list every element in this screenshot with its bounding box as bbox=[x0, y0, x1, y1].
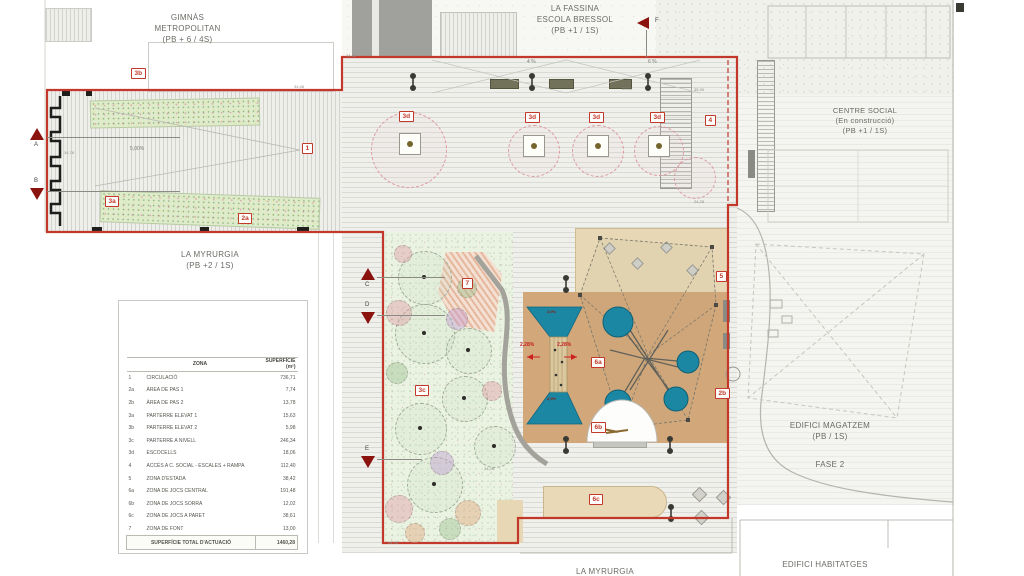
dimension-label: 34,28 bbox=[388, 540, 398, 545]
dimension-label: 34,51 bbox=[622, 86, 632, 91]
legend-row: 3cPARTERRE A NIVELL246,34 bbox=[127, 435, 298, 448]
section-arrow-d-icon bbox=[361, 312, 375, 324]
legend-total-row: SUPERFÍCIE TOTAL D'ACTUACIÓ1460,28 bbox=[127, 536, 298, 550]
section-arrow-letter: F bbox=[655, 18, 659, 24]
zone-marker: 2b bbox=[715, 388, 730, 399]
zone-marker: 2a bbox=[238, 213, 252, 224]
dimension-label: 35,39 bbox=[694, 87, 704, 92]
legend-row: 5ZONA D'ESTADA38,42 bbox=[127, 472, 298, 485]
zone-marker: 3d bbox=[399, 111, 414, 122]
zone-marker: 1 bbox=[302, 143, 313, 154]
section-arrow-c-icon bbox=[361, 268, 375, 280]
tree-trunk-dot bbox=[462, 396, 466, 400]
slope-label: 2,28% bbox=[557, 342, 571, 348]
building-label-habitatges: EDIFICI HABITATGES bbox=[725, 559, 925, 570]
bush bbox=[386, 362, 408, 384]
tree-trunk-dot bbox=[432, 482, 436, 486]
bush bbox=[446, 308, 468, 330]
tree-pit bbox=[399, 133, 421, 155]
section-arrow-e-icon bbox=[361, 456, 375, 468]
tree-pit bbox=[648, 135, 670, 157]
slope-label: 4 % bbox=[527, 59, 536, 65]
zone-marker: 6c bbox=[589, 494, 603, 505]
slope-label: 2,0% bbox=[547, 396, 556, 401]
legend-row: 3bPARTERRE ELEVAT 25,98 bbox=[127, 422, 298, 435]
legend-row: 6cZONA DE JOCS A PARET38,61 bbox=[127, 510, 298, 523]
section-line bbox=[646, 30, 647, 57]
legend-header: ZONASUPERFÍCIE (m²) bbox=[127, 358, 298, 372]
zone-marker: 5 bbox=[716, 271, 727, 282]
legend-row: 3dESCOCELLS18,06 bbox=[127, 447, 298, 460]
section-arrow-letter: A bbox=[34, 142, 38, 148]
zone-marker: 4 bbox=[705, 115, 716, 126]
zone-marker: 3d bbox=[650, 112, 665, 123]
legend-table: ZONASUPERFÍCIE (m²)1CIRCULACIÓ736,712aÀR… bbox=[126, 357, 298, 550]
bush bbox=[405, 523, 425, 543]
slope-label: 2,28% bbox=[520, 342, 534, 348]
bush bbox=[439, 518, 461, 540]
tree-trunk-dot bbox=[492, 444, 496, 448]
legend-row: 6aZONA DE JOCS CENTRAL191,48 bbox=[127, 485, 298, 498]
tree-trunk-dot bbox=[466, 348, 470, 352]
zone-marker: 3d bbox=[525, 112, 540, 123]
bush bbox=[385, 495, 413, 523]
zone-marker: 6b bbox=[591, 422, 606, 433]
dimension-label: 24,28 bbox=[694, 199, 704, 204]
legend-row: 3aPARTERRE ELEVAT 115,63 bbox=[127, 409, 298, 422]
tree-pit bbox=[523, 135, 545, 157]
legend-row: 1CIRCULACIÓ736,71 bbox=[127, 371, 298, 384]
building-label-magatzem: EDIFICI MAGATZEM(PB / 1S) bbox=[745, 420, 915, 442]
tree-canopy bbox=[674, 157, 716, 199]
building-label-gimnas: GIMNÀSMETROPOLITAN(PB + 6 / 4S) bbox=[95, 12, 280, 45]
dimension-label: 34,48 bbox=[346, 53, 356, 58]
legend-row: 6bZONA DE JOCS SORRA12,02 bbox=[127, 498, 298, 511]
building-label-centre-social: CENTRE SOCIAL(En construcció)(PB +1 / 1S… bbox=[790, 106, 940, 136]
section-line bbox=[377, 459, 422, 460]
section-arrow-letter: B bbox=[34, 178, 38, 184]
legend-row: 2bÀREA DE PAS 213,78 bbox=[127, 397, 298, 410]
section-arrow-letter: C bbox=[365, 282, 369, 288]
dimension-label: 34,78 bbox=[64, 150, 74, 155]
zone-marker: 7 bbox=[462, 278, 473, 289]
zone-marker: 3a bbox=[105, 196, 119, 207]
section-line bbox=[47, 137, 180, 138]
section-arrow-b-icon bbox=[30, 188, 44, 200]
legend-row: 4ACCÉS A C. SOCIAL - ESCALES + RAMPA112,… bbox=[127, 460, 298, 473]
section-arrow-a-icon bbox=[30, 128, 44, 140]
bush bbox=[430, 451, 454, 475]
slope-label: 5,00% bbox=[130, 146, 144, 152]
site-plan-canvas: GIMNÀSMETROPOLITAN(PB + 6 / 4S) LA FASSI… bbox=[0, 0, 1024, 576]
dimension-label: 34,28 bbox=[484, 466, 494, 471]
tree-pit bbox=[587, 135, 609, 157]
bush bbox=[394, 245, 412, 263]
dimension-label: 34,48 bbox=[294, 84, 304, 89]
zone-marker: 3b bbox=[131, 68, 146, 79]
zone-marker: 3c bbox=[415, 385, 429, 396]
tree-trunk-dot bbox=[418, 426, 422, 430]
legend-card: ZONASUPERFÍCIE (m²)1CIRCULACIÓ736,712aÀR… bbox=[118, 300, 308, 554]
zone-marker: 3d bbox=[589, 112, 604, 123]
bush bbox=[482, 381, 502, 401]
building-label-myrurgia: LA MYRURGIA(PB +2 / 1S) bbox=[120, 249, 300, 271]
building-label-myrurgia-bottom: LA MYRURGIA bbox=[525, 566, 685, 576]
section-arrow-f-icon bbox=[637, 17, 649, 29]
slope-label: 2,0% bbox=[547, 309, 556, 314]
zone-marker: 6a bbox=[591, 357, 605, 368]
section-arrow-letter: D bbox=[365, 302, 369, 308]
section-line bbox=[47, 191, 180, 192]
tree-trunk-dot bbox=[422, 331, 426, 335]
fase2-label: FASE 2 bbox=[745, 459, 915, 470]
legend-row: 2aÀREA DE PAS 17,74 bbox=[127, 384, 298, 397]
slope-label: 6 % bbox=[648, 59, 657, 65]
section-line bbox=[377, 315, 445, 316]
legend-row: 7ZONA DE FONT13,00 bbox=[127, 523, 298, 536]
section-arrow-letter: E bbox=[365, 446, 369, 452]
section-line bbox=[377, 277, 445, 278]
bush bbox=[386, 300, 412, 326]
